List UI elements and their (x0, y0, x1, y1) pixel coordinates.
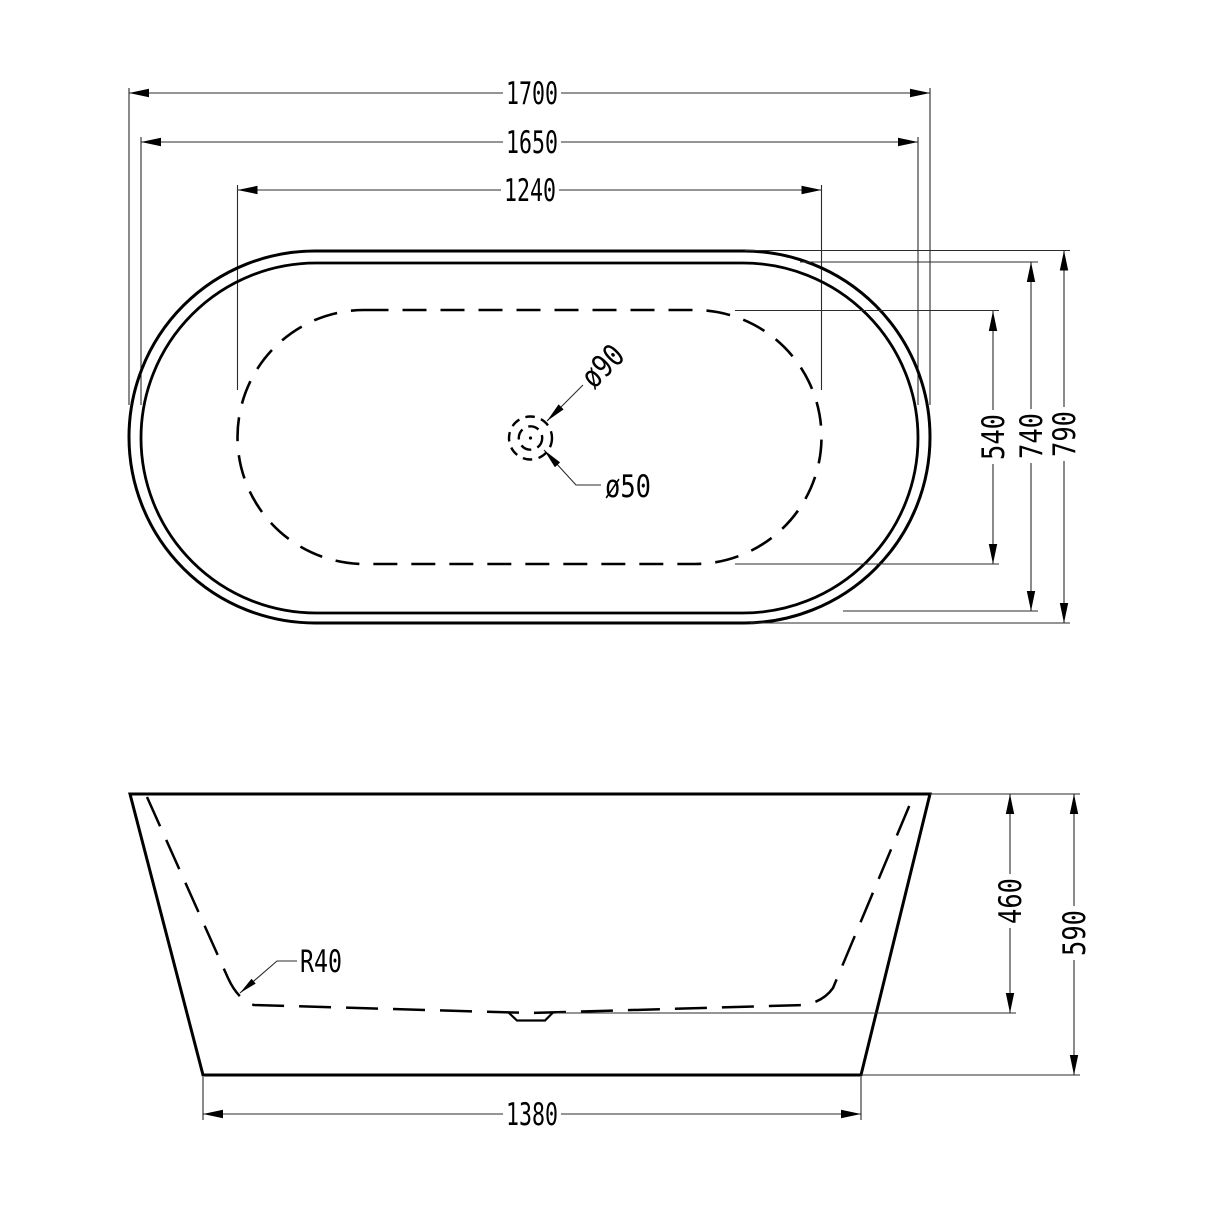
side-view: R40 460 590 (130, 794, 1093, 1133)
arrowhead-left (141, 138, 161, 146)
leader-drain-inner-diameter: ø50 (544, 450, 651, 505)
arrowhead-top (1070, 794, 1078, 814)
dim-label-540: 540 (976, 414, 1012, 460)
dim-label-1380: 1380 (506, 1097, 558, 1133)
arrowhead-bottom (1027, 591, 1035, 611)
arrowhead-top (1027, 262, 1035, 282)
arrowhead-left (129, 89, 149, 97)
dim-label-1240: 1240 (504, 173, 556, 209)
leader-line (240, 961, 297, 993)
arrowhead-top (1006, 794, 1014, 814)
dimension-rim-length: 1650 (141, 125, 918, 405)
leader-arrowhead (240, 979, 256, 993)
dimension-base-length: 1380 (203, 1077, 861, 1133)
arrowhead-left (238, 186, 258, 194)
drain-center-dot (529, 436, 532, 439)
leader-line (544, 450, 601, 485)
arrowhead-bottom (1006, 993, 1014, 1013)
dimension-rim-width: 740 (800, 262, 1050, 611)
dim-label-790: 790 (1047, 411, 1083, 457)
dim-label-1700: 1700 (506, 76, 558, 112)
arrowhead-top (989, 311, 997, 331)
arrowhead-bottom (989, 544, 997, 564)
tub-side-profile-outline (130, 794, 930, 1075)
dimension-floor-width: 540 (735, 311, 1012, 565)
arrowhead-right (802, 186, 822, 194)
arrowhead-right (841, 1110, 861, 1118)
arrowhead-left (203, 1110, 223, 1118)
arrowhead-right (898, 138, 918, 146)
dim-label-drain-inner: ø50 (605, 469, 651, 505)
leader-drain-outer-diameter: ø90 (547, 338, 632, 421)
dimension-floor-length: 1240 (238, 173, 822, 390)
dim-label-590: 590 (1057, 910, 1093, 956)
drawing-sheet: 1700 1650 1240 (0, 0, 1214, 1214)
dim-label-1650: 1650 (506, 125, 558, 161)
dim-label-740: 740 (1014, 413, 1050, 459)
leader-bottom-radius: R40 (240, 944, 342, 993)
technical-drawing: 1700 1650 1240 (0, 0, 1214, 1214)
leader-arrowhead (544, 450, 560, 467)
arrowhead-bottom (1060, 603, 1068, 623)
dim-label-R40: R40 (300, 944, 342, 980)
arrowhead-top (1060, 251, 1068, 271)
drain (509, 417, 552, 460)
tub-interior-hidden-profile (147, 797, 913, 1013)
top-view: 1700 1650 1240 (129, 76, 1083, 623)
arrowhead-bottom (1070, 1055, 1078, 1075)
dim-label-drain-outer: ø90 (574, 338, 632, 396)
dim-label-460: 460 (993, 878, 1029, 924)
arrowhead-right (910, 89, 930, 97)
dimension-inner-depth: 460 (556, 794, 1029, 1013)
